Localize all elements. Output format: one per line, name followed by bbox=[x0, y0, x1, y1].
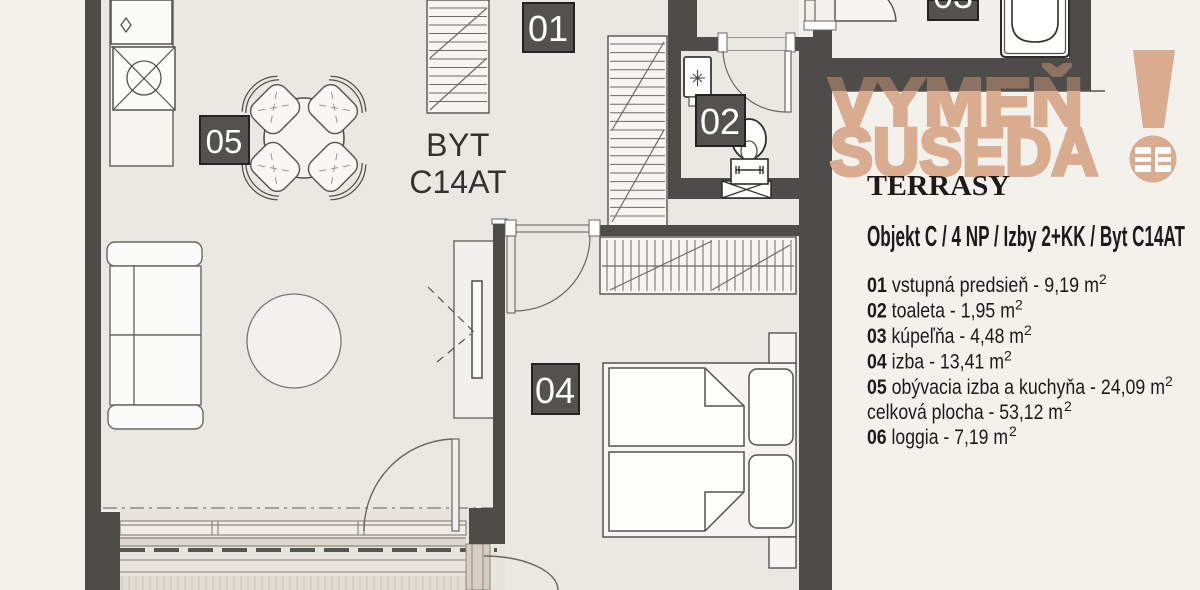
svg-text:C14AT: C14AT bbox=[409, 164, 506, 200]
svg-text:02 toaleta - 1,95 m: 02 toaleta - 1,95 m bbox=[867, 299, 1015, 323]
svg-text:TERRASY: TERRASY bbox=[867, 170, 1010, 202]
svg-text:04: 04 bbox=[535, 370, 575, 411]
svg-text:2: 2 bbox=[1165, 373, 1173, 389]
svg-text:2: 2 bbox=[1024, 322, 1032, 338]
svg-text:2: 2 bbox=[1015, 297, 1023, 313]
svg-text:celková plocha - 53,12 m: celková plocha - 53,12 m bbox=[867, 400, 1063, 424]
svg-text:Objekt C / 4 NP / Izby 2+KK /: Objekt C / 4 NP / Izby 2+KK / Byt C14AT bbox=[867, 221, 1185, 253]
svg-text:05: 05 bbox=[206, 123, 243, 160]
svg-text:2: 2 bbox=[1004, 348, 1012, 364]
svg-text:2: 2 bbox=[1064, 398, 1072, 414]
svg-text:01 vstupná predsieň - 9,19 m: 01 vstupná predsieň - 9,19 m bbox=[867, 273, 1099, 297]
svg-text:04 izba - 13,41 m: 04 izba - 13,41 m bbox=[867, 350, 1004, 374]
svg-text:2: 2 bbox=[1009, 423, 1017, 439]
svg-text:BYT: BYT bbox=[426, 127, 490, 163]
svg-text:2: 2 bbox=[1099, 271, 1107, 287]
svg-text:03: 03 bbox=[933, 0, 973, 16]
svg-text:05 obývacia izba a kuchyňa - 2: 05 obývacia izba a kuchyňa - 24,09 m bbox=[867, 375, 1165, 399]
svg-text:06 loggia - 7,19 m: 06 loggia - 7,19 m bbox=[867, 425, 1008, 449]
svg-text:02: 02 bbox=[700, 101, 740, 142]
svg-text:03 kúpeľňa - 4,48 m: 03 kúpeľňa - 4,48 m bbox=[867, 324, 1024, 348]
svg-text:01: 01 bbox=[528, 8, 568, 49]
